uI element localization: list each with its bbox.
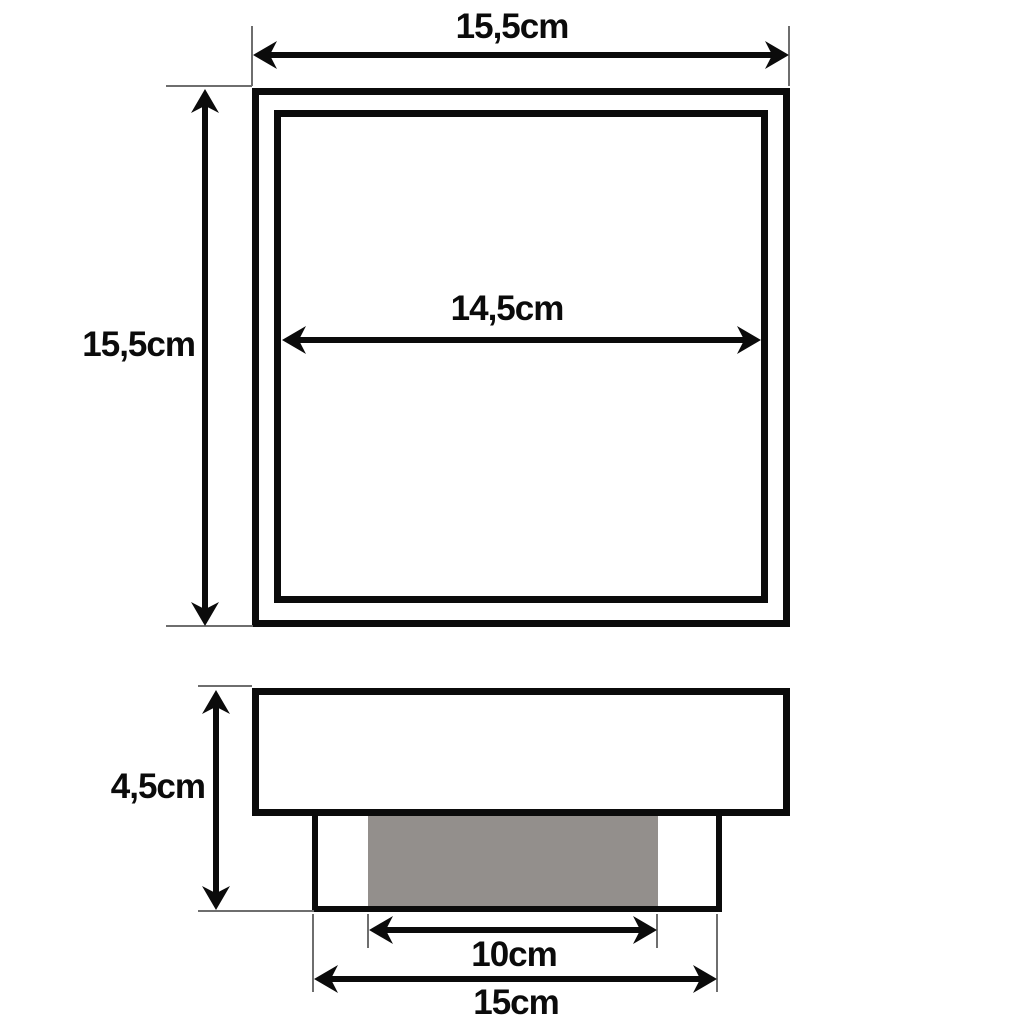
extension-line xyxy=(716,914,718,992)
technical-drawing-canvas: 15,5cm 15,5cm 14,5cm xyxy=(0,0,1024,1024)
dimension-label: 10cm xyxy=(314,936,714,975)
extension-line xyxy=(198,685,252,687)
extension-line xyxy=(166,85,252,87)
dimension-line xyxy=(375,927,651,933)
extension-line xyxy=(166,625,253,627)
dimension-line xyxy=(202,95,208,620)
dimension-line xyxy=(213,696,219,904)
dimension-line xyxy=(259,52,783,58)
dimension-label: 14,5cm xyxy=(307,290,707,329)
extension-line xyxy=(788,26,790,86)
side-view-top-plate xyxy=(252,688,790,816)
extension-line xyxy=(251,26,253,86)
dimension-label: 4,5cm xyxy=(55,768,205,807)
side-view-recess xyxy=(368,816,658,906)
extension-line xyxy=(312,914,314,992)
dimension-label: 15,5cm xyxy=(45,326,195,365)
dimension-label: 15cm xyxy=(316,984,716,1023)
dimension-line xyxy=(288,337,755,343)
extension-line xyxy=(198,910,314,912)
dimension-line xyxy=(320,976,711,982)
top-view-inner-frame xyxy=(274,110,768,603)
dimension-label: 15,5cm xyxy=(312,8,712,47)
